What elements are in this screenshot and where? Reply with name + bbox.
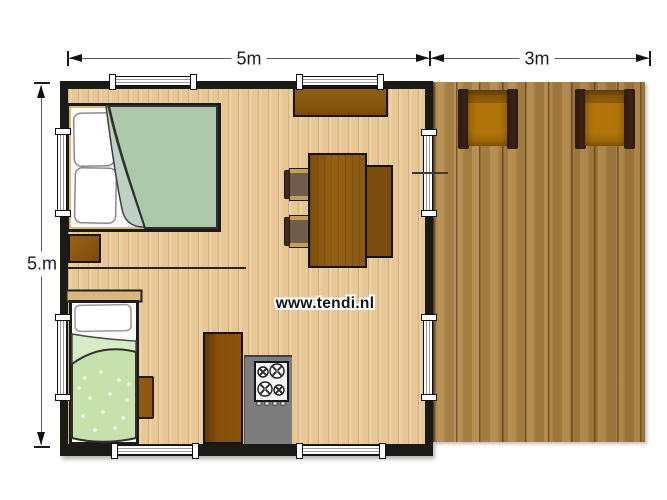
watermark-text: www.tendi.nl [276,295,375,313]
deck-chair-2 [575,88,635,150]
stove [253,359,291,407]
headboard [67,291,142,302]
chair-seat [290,216,309,247]
double-bed [66,103,221,232]
window-bottom-1 [115,445,195,455]
dim-label-width-main: 5m [231,49,266,70]
window-top-2 [300,76,380,86]
window-bottom-2 [300,445,382,455]
chair-seat [290,169,309,200]
chair-armrest [624,89,635,149]
dim-arrow-left [69,54,82,62]
pillow [75,305,131,332]
chair-seat [468,90,508,146]
dim-tick [34,446,50,448]
door-handle-line [412,172,448,174]
dim-arrow-up [37,85,45,98]
floor-plan: 5m 3m 5.m [0,0,667,500]
window-top-1 [113,76,193,86]
partition-line [68,267,246,269]
duvet [72,349,136,441]
wardrobe [203,332,243,444]
dining-chair-2 [284,216,309,247]
sideboard [293,87,388,117]
dining-bench [365,165,393,258]
dim-arrow-right [416,54,429,62]
window-right [423,318,433,397]
dining-table [308,153,367,268]
single-bed [65,288,143,448]
chair-armrest [507,89,518,149]
dim-arrow-right [636,54,649,62]
dim-tick [649,51,651,66]
dim-arrow-down [37,432,45,445]
dim-label-height-main: 5.m [24,252,60,277]
window-left-2 [57,318,67,397]
nightstand [68,234,101,263]
deck [433,82,645,442]
pillow [75,168,117,224]
chair-seat [585,90,625,146]
dim-tick [34,82,50,84]
dining-chair-1 [284,169,309,200]
dim-label-width-deck: 3m [519,49,554,70]
window-left-1 [57,132,67,213]
dim-arrow-left [431,54,444,62]
deck-chair-1 [458,88,518,150]
